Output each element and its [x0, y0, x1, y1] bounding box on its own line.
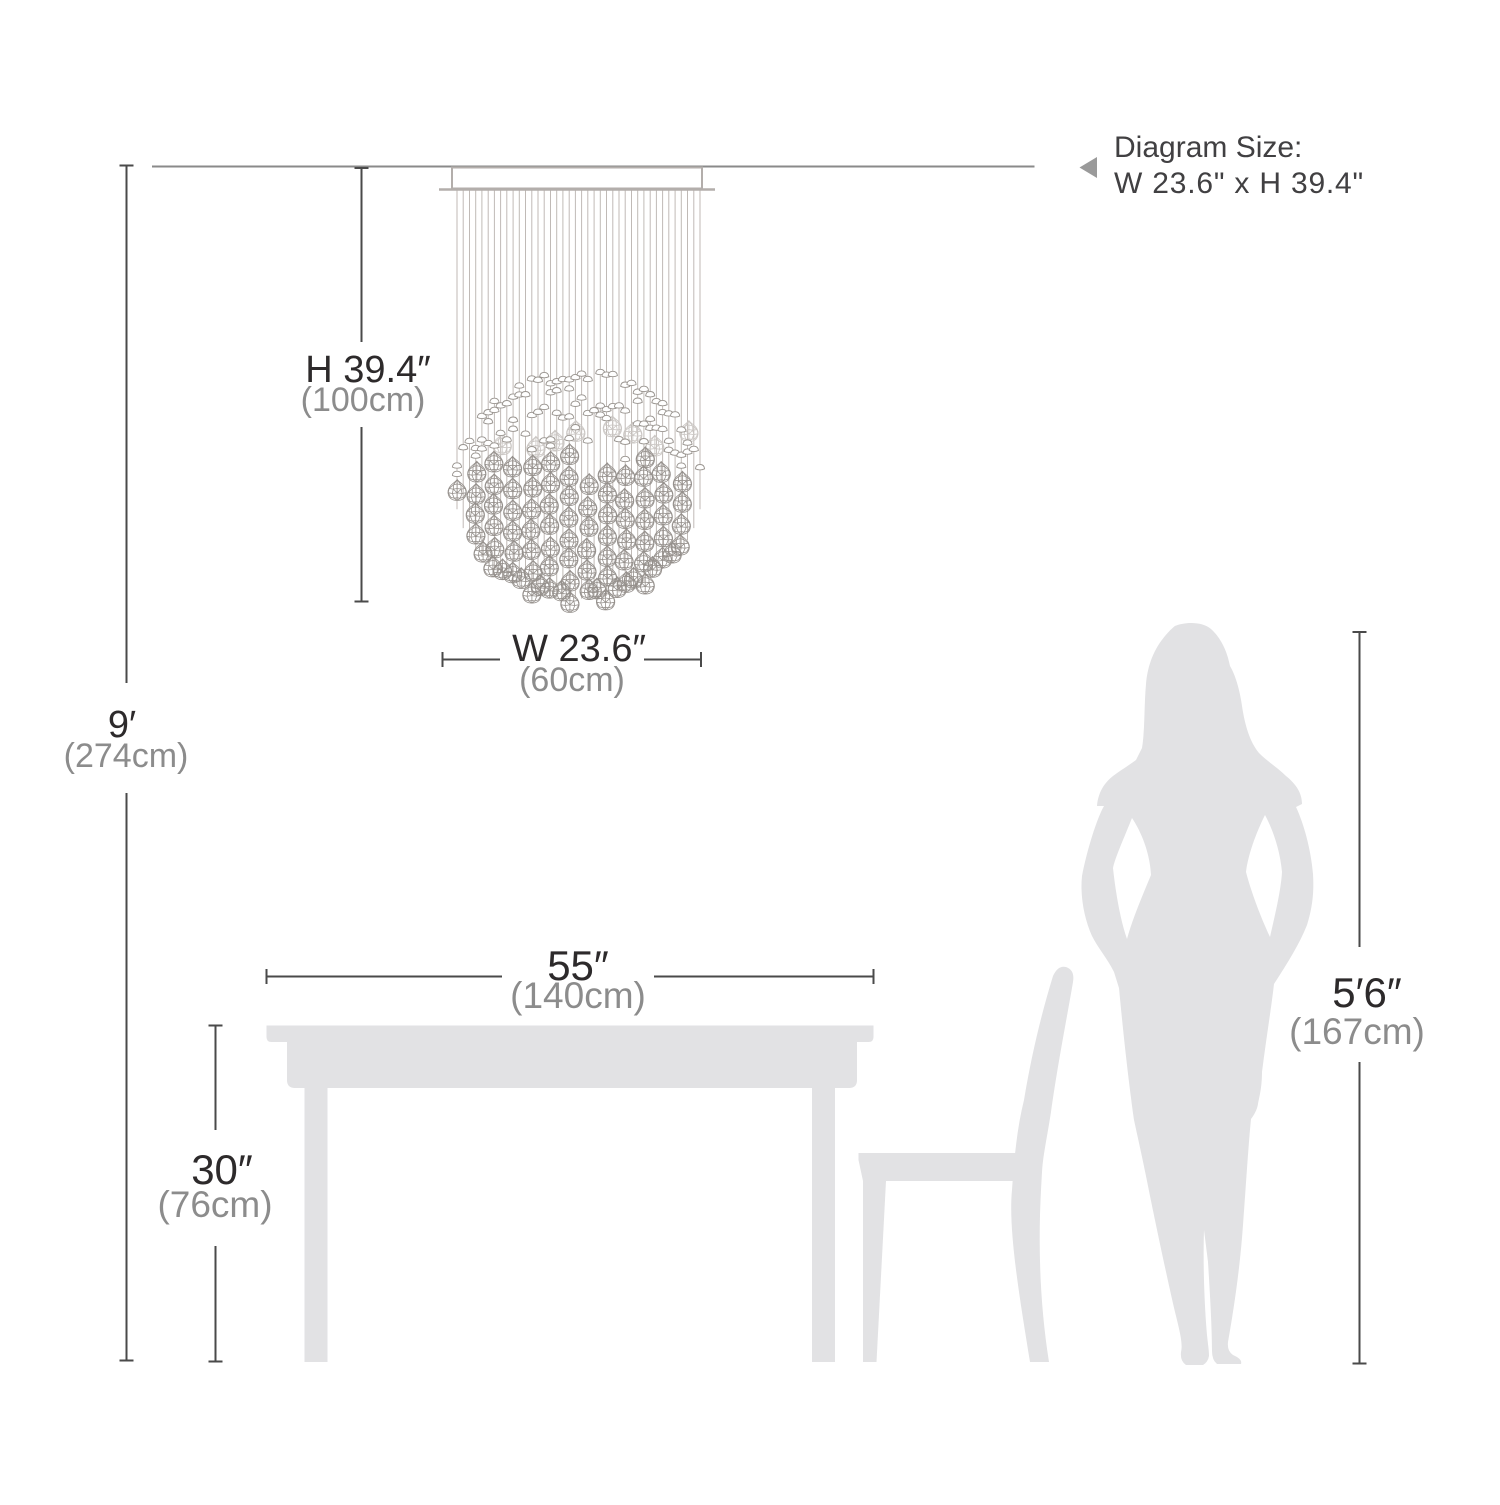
svg-text:(140cm): (140cm) — [510, 975, 646, 1016]
svg-text:(60cm): (60cm) — [519, 661, 625, 699]
svg-text:Diagram Size:: Diagram Size: — [1114, 131, 1302, 164]
svg-text:(274cm): (274cm) — [64, 737, 189, 775]
svg-text:(167cm): (167cm) — [1289, 1011, 1425, 1052]
svg-text:(76cm): (76cm) — [157, 1184, 272, 1225]
svg-text:5′6″: 5′6″ — [1332, 969, 1402, 1016]
svg-text:(100cm): (100cm) — [301, 381, 426, 419]
svg-text:W 23.6" x H 39.4": W 23.6" x H 39.4" — [1114, 167, 1364, 200]
